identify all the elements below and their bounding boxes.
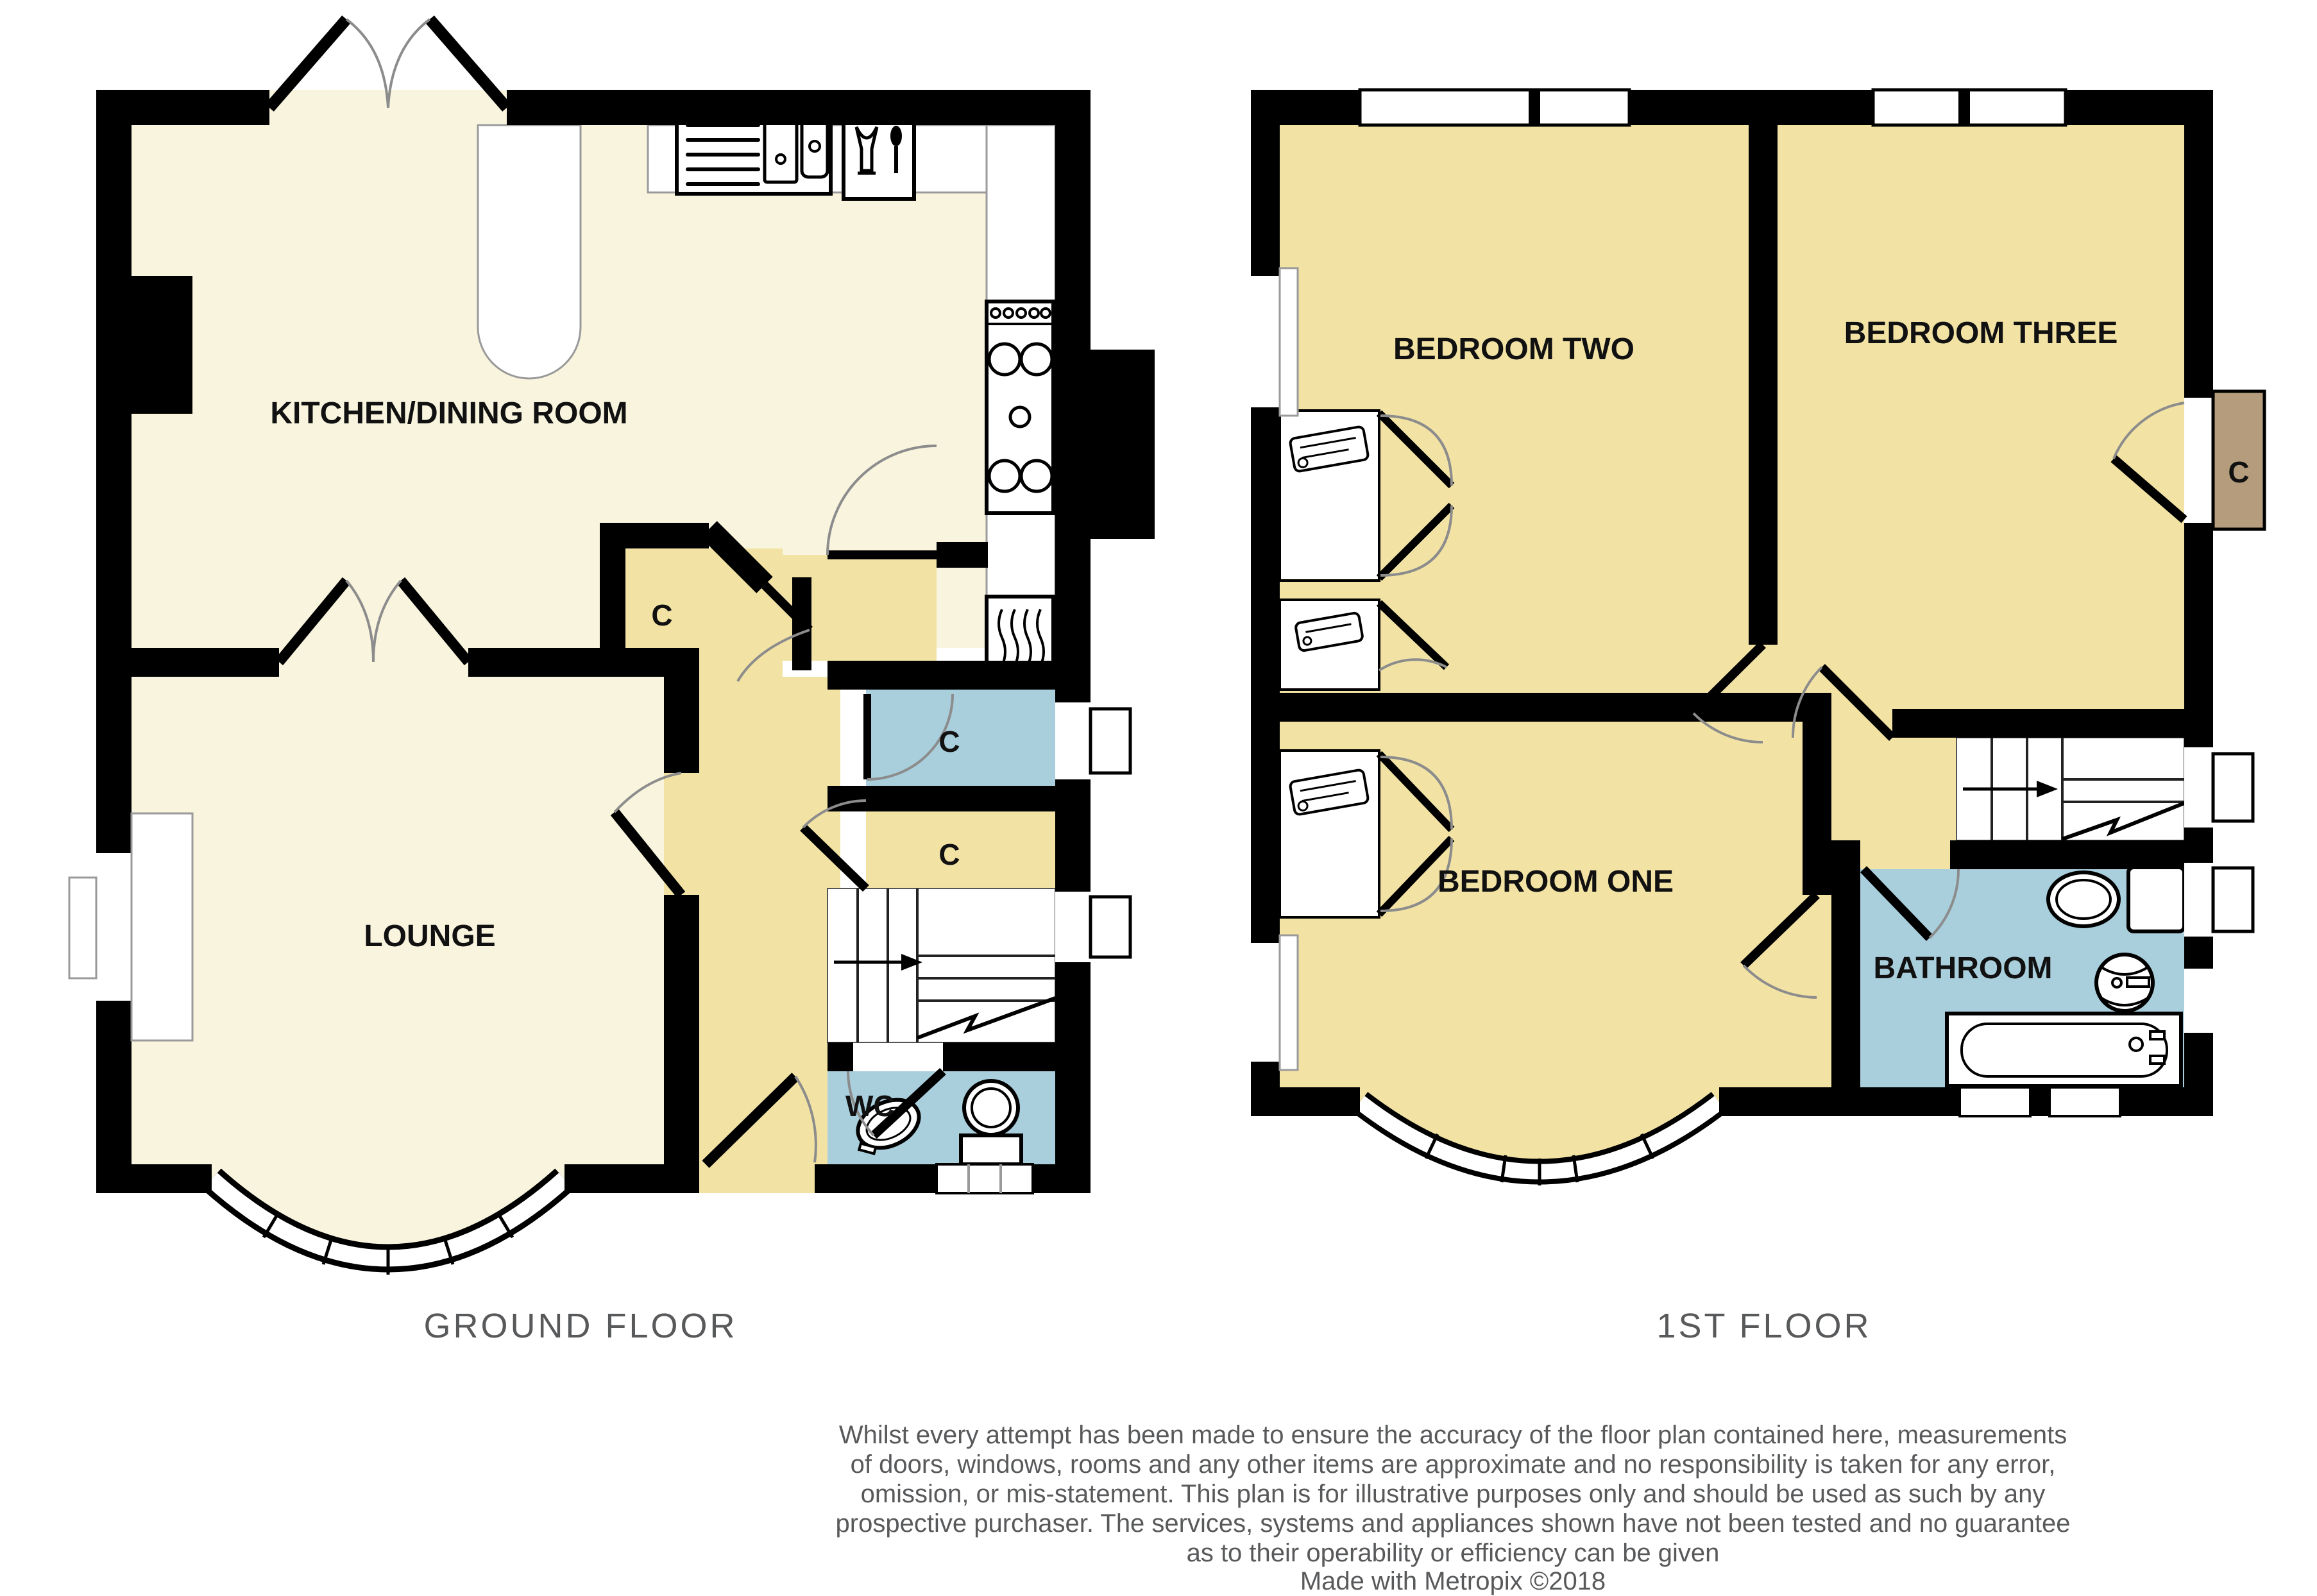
bathroom-bottom-window-2 <box>2050 1087 2120 1116</box>
bathroom-window-1 <box>2184 863 2213 937</box>
wc-window <box>937 1164 1033 1193</box>
disclaimer-credit: Made with Metropix ©2018 <box>1300 1567 1606 1595</box>
bathroom-label: BATHROOM <box>1873 951 2052 985</box>
stairs-first-floor <box>1956 738 2184 840</box>
bedroom-one-label: BEDROOM ONE <box>1438 865 1674 899</box>
floor-plan-svg: KITCHEN/DINING ROOM LOUNGE WC C C C GROU… <box>0 0 2317 1596</box>
toilet-icon <box>961 1081 1021 1164</box>
basin-icon <box>2096 955 2153 1011</box>
cupboard-window <box>1055 702 1091 779</box>
bedroom-two-side-window <box>1251 276 1280 407</box>
stairs-ground-floor <box>827 888 1055 1042</box>
first-floor-title: 1ST FLOOR <box>1656 1307 1871 1345</box>
chimney-right-exterior <box>1091 350 1155 539</box>
cupboard-opening <box>2184 398 2213 523</box>
chimney-breast-left <box>132 276 192 414</box>
cooker-icon <box>987 301 1053 513</box>
cupboard-blue-label: C <box>938 725 960 758</box>
floor-plan-page: KITCHEN/DINING ROOM LOUNGE WC C C C GROU… <box>0 0 2317 1596</box>
bay-window-lounge <box>212 1164 564 1275</box>
landing-window <box>2184 747 2213 828</box>
bathroom-bottom-window-1 <box>1960 1087 2030 1116</box>
disclaimer-line: omission, or mis-statement. This plan is… <box>861 1480 2046 1508</box>
cupboard-beige-label: C <box>938 838 960 871</box>
cupboard-brown-label: C <box>2228 455 2249 489</box>
disclaimer-line: as to their operability or efficiency ca… <box>1187 1539 1720 1567</box>
disclaimer-block: Whilst every attempt has been made to en… <box>836 1421 2071 1595</box>
disclaimer-line: Whilst every attempt has been made to en… <box>839 1421 2067 1449</box>
stairs-window <box>1055 892 1091 962</box>
cupboard-blue-floor <box>866 690 1055 786</box>
hall-closet-label: C <box>651 598 672 632</box>
first-floor-plan: BEDROOM TWO BEDROOM THREE BEDROOM ONE BA… <box>1251 90 2264 1345</box>
bathroom-window-2 <box>2184 969 2213 1033</box>
bedroom-two-window <box>1360 90 1629 125</box>
bedroom-three-label: BEDROOM THREE <box>1844 316 2118 350</box>
wc-label: WC <box>845 1089 895 1123</box>
bedroom-two-label: BEDROOM TWO <box>1393 332 1634 366</box>
lounge-window <box>96 853 132 1001</box>
disclaimer-line: prospective purchaser. The services, sys… <box>836 1509 2071 1538</box>
kitchen-label: KITCHEN/DINING ROOM <box>270 396 627 430</box>
ground-floor-title: GROUND FLOOR <box>423 1307 737 1345</box>
lounge-label: LOUNGE <box>364 919 495 953</box>
bath-icon <box>1947 1014 2181 1086</box>
kitchen-peninsula <box>478 125 581 378</box>
bay-window-bedroom-one <box>1360 1087 1719 1185</box>
bedroom-one-side-window <box>1251 943 1280 1062</box>
disclaimer-line: of doors, windows, rooms and any other i… <box>851 1450 2056 1479</box>
ground-floor-plan: KITCHEN/DINING ROOM LOUNGE WC C C C GROU… <box>69 19 1155 1345</box>
